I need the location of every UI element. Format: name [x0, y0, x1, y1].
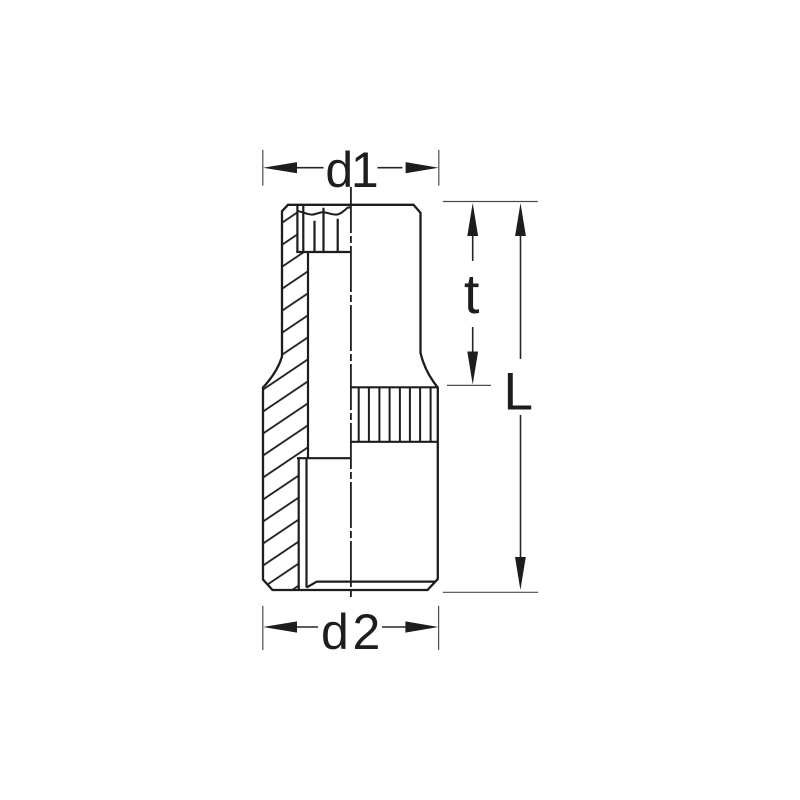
svg-text:2: 2 [353, 604, 381, 660]
svg-text:t: t [464, 262, 480, 325]
svg-text:1: 1 [351, 142, 379, 198]
svg-text:d: d [325, 142, 353, 198]
svg-text:d: d [321, 604, 349, 660]
svg-text:L: L [504, 363, 533, 422]
